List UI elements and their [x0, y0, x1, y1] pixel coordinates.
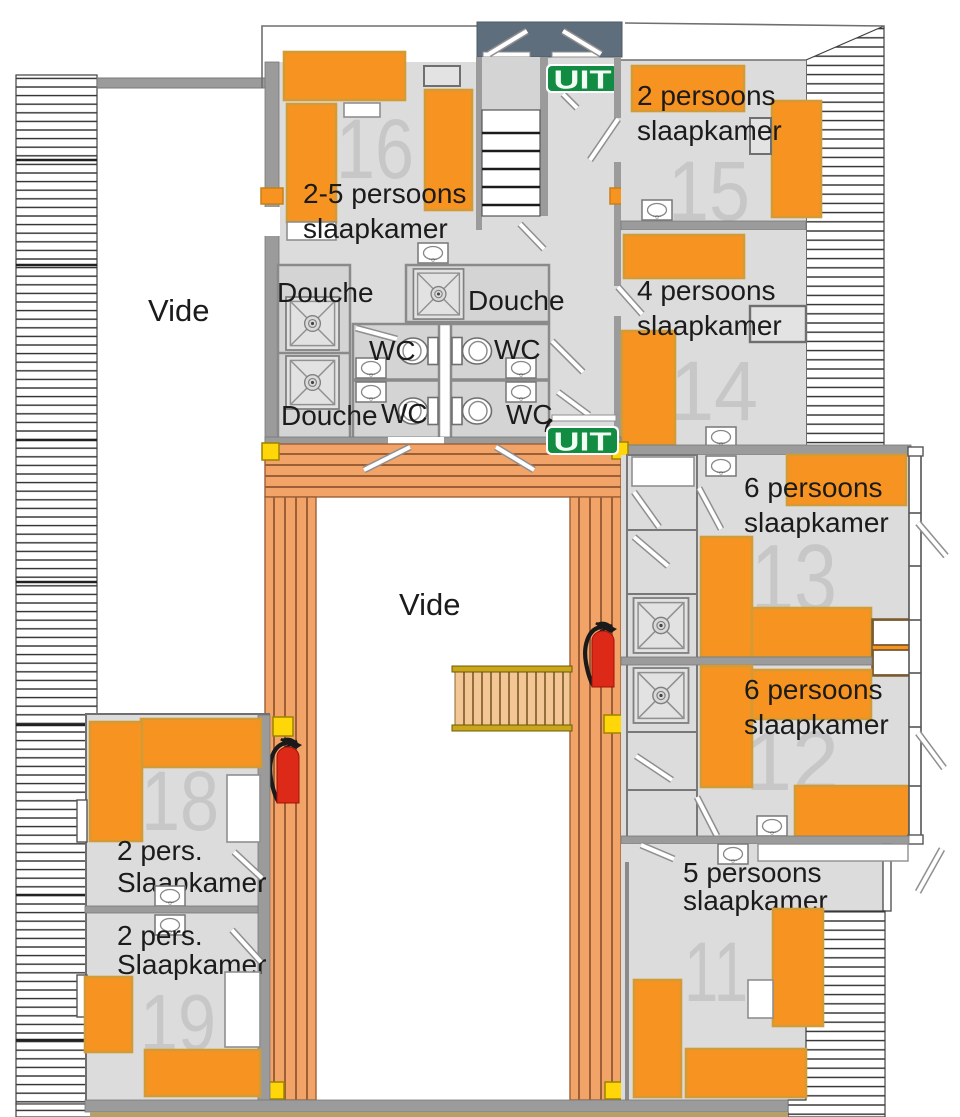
svg-text:Slaapkamer: Slaapkamer: [117, 867, 266, 898]
svg-text:4 persoons: 4 persoons: [637, 275, 776, 306]
svg-text:slaapkamer: slaapkamer: [637, 310, 782, 341]
svg-text:5 persoons: 5 persoons: [683, 857, 822, 888]
svg-text:Vide: Vide: [399, 587, 461, 622]
svg-text:2 pers.: 2 pers.: [117, 835, 203, 866]
svg-text:WC: WC: [506, 399, 553, 430]
svg-text:WC: WC: [494, 334, 541, 365]
svg-text:Douche: Douche: [468, 285, 565, 316]
svg-text:2 pers.: 2 pers.: [117, 920, 203, 951]
svg-text:14: 14: [670, 344, 758, 438]
svg-text:WC: WC: [369, 335, 416, 366]
svg-text:Douche: Douche: [281, 400, 378, 431]
svg-text:Douche: Douche: [277, 277, 374, 308]
svg-text:slaapkamer: slaapkamer: [303, 213, 448, 244]
svg-text:11: 11: [684, 925, 748, 1019]
svg-text:6 persoons: 6 persoons: [744, 472, 883, 503]
svg-text:Vide: Vide: [148, 293, 210, 328]
svg-text:2-5 persoons: 2-5 persoons: [303, 178, 466, 209]
svg-text:6 persoons: 6 persoons: [744, 674, 883, 705]
svg-text:slaapkamer: slaapkamer: [637, 115, 782, 146]
svg-text:WC: WC: [381, 398, 428, 429]
svg-text:slaapkamer: slaapkamer: [744, 507, 889, 538]
svg-text:2 persoons: 2 persoons: [637, 80, 776, 111]
svg-text:slaapkamer: slaapkamer: [744, 709, 889, 740]
